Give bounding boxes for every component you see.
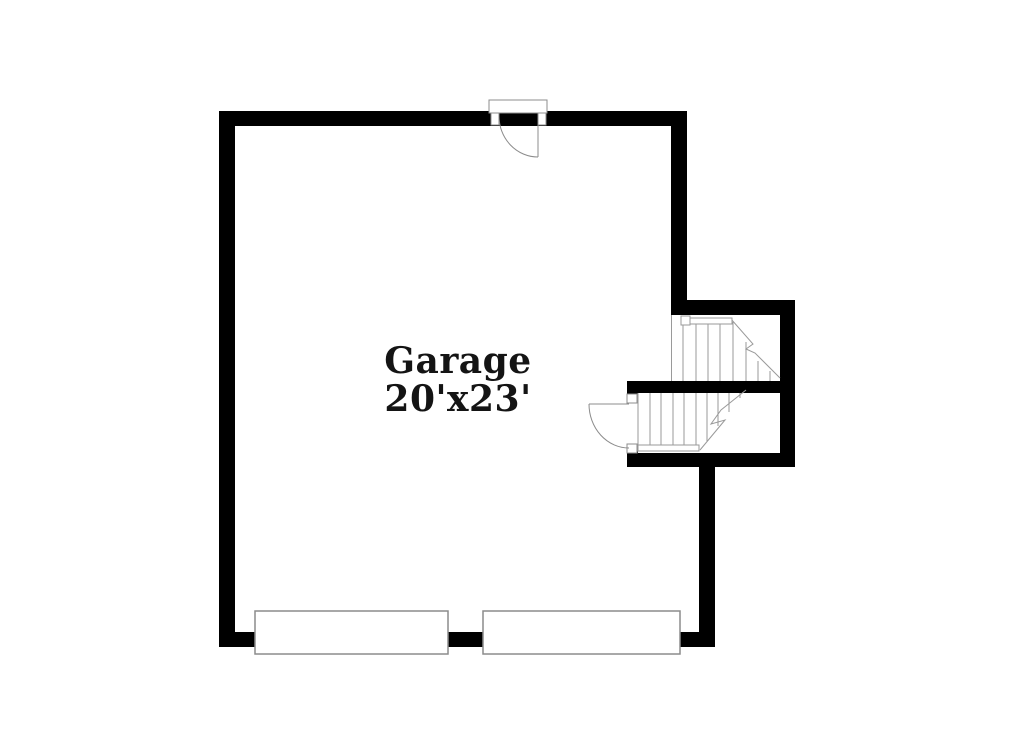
top-door-header: [489, 100, 547, 113]
garage-door-panel-2: [483, 611, 680, 654]
floorplan: Garage 20'x23': [0, 0, 1024, 744]
upper-stairs-break-line: [731, 319, 780, 378]
top-wall: [219, 111, 687, 126]
garage-lower-right-wall: [699, 453, 715, 647]
stair-door-swing-arc: [589, 404, 629, 448]
stair-door-wall-top: [627, 381, 638, 394]
floorplan-svg: Garage 20'x23': [0, 0, 1024, 744]
stair-top-wall: [671, 300, 795, 315]
garage-right-wall: [671, 111, 687, 315]
stair-door-jamb-bottom: [627, 444, 637, 453]
garage-door-panel-1: [255, 611, 448, 654]
stair-middle-wall: [627, 381, 795, 393]
left-wall: [219, 111, 235, 647]
lower-stairs-rail: [638, 445, 699, 451]
upper-stairs-newel: [681, 316, 690, 325]
room-dimensions-label: 20'x23': [384, 378, 531, 420]
top-door-jamb-left: [491, 113, 499, 125]
room-label: Garage: [384, 340, 531, 382]
upper-stairs-rail: [690, 318, 732, 324]
stair-door-jamb-top: [627, 394, 637, 403]
top-door-jamb-right: [538, 113, 546, 125]
